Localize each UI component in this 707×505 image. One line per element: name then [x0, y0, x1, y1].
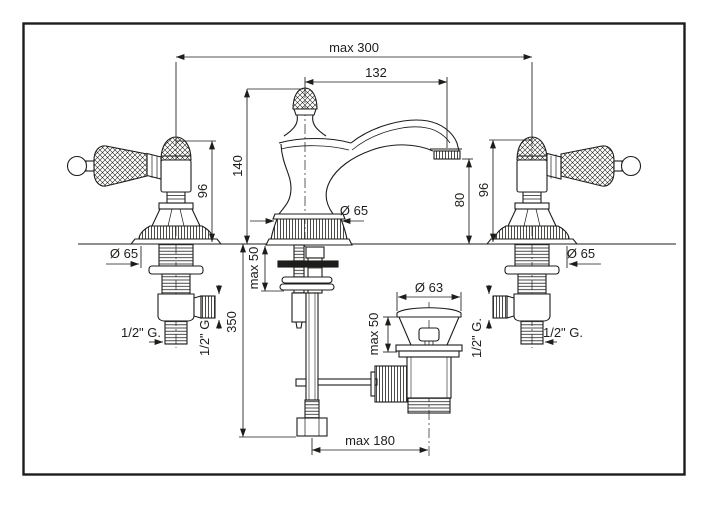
spout-base-flare	[273, 214, 345, 219]
left-outlet-cone	[194, 296, 201, 318]
left-lever-neck	[86, 161, 94, 171]
rubber-gasket	[278, 261, 338, 267]
left-lever-hub	[147, 154, 161, 180]
dim-label-o63: Ø 63	[415, 280, 443, 295]
dim-label-thread-right-inlet: 1/2" G.	[543, 325, 583, 340]
rod-coupling-nut	[297, 418, 327, 436]
rod-guide-tip	[296, 322, 302, 328]
rod-side-pin	[296, 379, 306, 386]
right-locknut-flange	[505, 266, 559, 274]
dim-label-96-right: 96	[476, 183, 491, 197]
dim-label-thread-left-inlet: 1/2" G.	[121, 325, 161, 340]
right-base-skirt	[495, 226, 569, 239]
right-base-foot	[487, 239, 577, 244]
right-valve-head	[517, 160, 547, 192]
drain-flange-upper	[396, 345, 462, 351]
right-stem	[523, 192, 541, 203]
right-valve-body	[514, 294, 550, 321]
dim-label-132: 132	[365, 65, 387, 80]
dim-label-max-300: max 300	[329, 40, 379, 55]
left-side-outlet	[201, 296, 215, 318]
left-bonnet	[152, 209, 200, 226]
right-inlet-pipe	[521, 321, 543, 344]
drain-threaded-outlet	[408, 398, 450, 413]
left-valve-head	[161, 160, 191, 192]
left-threaded-shank	[159, 244, 193, 266]
dim-label-o65-right: Ø 65	[567, 246, 595, 261]
dim-label-thread-left-outlet: 1/2" G.	[197, 316, 212, 356]
knob-collar	[294, 109, 316, 115]
technical-drawing-page: max 300 132 140 96 96 80 Ø 65 Ø 65 Ø 65 …	[0, 0, 707, 500]
drain-plug	[419, 328, 439, 341]
left-valve-body	[158, 294, 194, 321]
right-lever-ball	[622, 157, 641, 176]
lift-rod-tube	[306, 293, 318, 400]
washer-lower	[280, 284, 334, 290]
drain-flange-lower	[399, 351, 459, 357]
drain-body	[407, 357, 451, 398]
dim-label-max50-drain: max 50	[366, 313, 381, 356]
dim-label-96-left: 96	[195, 184, 210, 198]
right-outlet-cone	[507, 296, 514, 318]
spout-base-foot	[266, 239, 352, 245]
dim-label-350: 350	[224, 311, 239, 333]
dim-label-o65-left: Ø 65	[110, 246, 138, 261]
dim-label-max180: max 180	[345, 433, 395, 448]
left-lower-shank	[162, 274, 190, 294]
dim-label-80: 80	[452, 193, 467, 207]
dim-label-max50-center: max 50	[246, 247, 261, 290]
right-lower-shank	[518, 274, 546, 294]
dim-label-140: 140	[230, 155, 245, 177]
right-lever-neck	[614, 161, 622, 171]
left-inlet-pipe	[165, 321, 187, 344]
right-collar	[515, 203, 549, 209]
spout-aerator	[434, 151, 460, 159]
left-base-skirt	[139, 226, 213, 239]
rod-threaded-tip	[305, 400, 319, 418]
left-lever-ball	[68, 157, 87, 176]
right-threaded-shank	[515, 244, 549, 266]
right-side-outlet	[493, 296, 507, 318]
left-collar	[159, 203, 193, 209]
faucet-technical-drawing: max 300 132 140 96 96 80 Ø 65 Ø 65 Ø 65 …	[0, 0, 707, 500]
drain-knurled-nut	[375, 366, 407, 402]
left-locknut-flange	[149, 266, 203, 274]
right-bonnet	[508, 209, 556, 226]
horizontal-link-rod	[318, 379, 377, 385]
washer-upper	[282, 277, 332, 283]
left-stem	[167, 192, 185, 203]
rod-guide-block	[292, 293, 306, 322]
rod-housing-nut	[306, 247, 324, 258]
drain-top-rim	[397, 308, 461, 317]
left-base-foot	[131, 239, 221, 244]
right-lever-hub	[547, 154, 561, 180]
spout-base-skirt	[271, 219, 347, 239]
dim-label-thread-right-outlet: 1/2" G.	[469, 318, 484, 358]
dim-label-o65-center: Ø 65	[340, 203, 368, 218]
drain-nut-cap	[371, 372, 375, 396]
